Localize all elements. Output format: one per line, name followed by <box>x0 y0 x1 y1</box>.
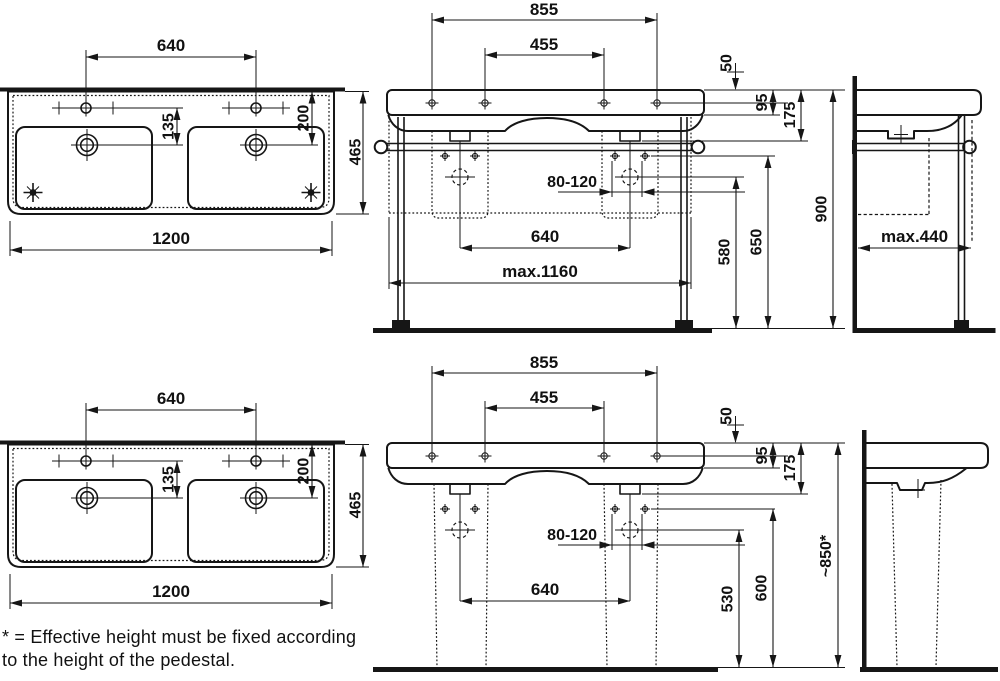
floor-line <box>373 328 712 333</box>
basin-underside-side <box>857 116 962 139</box>
frame-legs <box>392 117 693 328</box>
plan-view-top <box>0 36 369 256</box>
dim-rim-height: ~850* <box>818 443 838 667</box>
towel-rail-side <box>852 140 976 154</box>
dim-label-600: 600 <box>754 575 771 602</box>
dim-label-max440: max.440 <box>881 227 948 246</box>
floor-line <box>860 667 998 672</box>
dim-drain-height: 530 <box>720 530 739 667</box>
dim-label-580: 580 <box>717 239 734 266</box>
wall-line <box>862 430 867 672</box>
dim-label-max1160: max.1160 <box>502 262 578 281</box>
washbasin-technical-drawing: 640 135 200 465 1200 <box>0 0 1000 681</box>
footnote-line-2: to the height of the pedestal. <box>2 650 235 670</box>
footnote: * = Effective height must be fixed accor… <box>2 627 356 670</box>
mounting-cross-right <box>302 183 321 202</box>
dim-fixing-height: 600 <box>754 509 773 667</box>
trap-cross-mark <box>894 125 908 144</box>
footnote-line-1: * = Effective height must be fixed accor… <box>2 627 356 647</box>
dim-label-650: 650 <box>749 229 766 256</box>
side-view-with-legs: max.440 <box>852 76 996 333</box>
mounting-cross-left <box>24 183 43 202</box>
dim-fixing-height: 650 <box>749 156 768 328</box>
dim-label-900: 900 <box>814 196 831 223</box>
side-view-with-pedestal <box>860 430 998 672</box>
dim-rim-height: 900 <box>814 90 833 328</box>
dim-drain-height: 580 <box>717 177 736 328</box>
towel-rail <box>375 141 705 154</box>
plan-view-bottom <box>0 389 369 609</box>
floor-line <box>853 328 996 333</box>
dim-label-850: ~850* <box>818 534 835 577</box>
basin-slab-side <box>857 90 981 115</box>
pedestal-side-dotted <box>892 480 941 667</box>
basin-underside-side <box>866 469 966 491</box>
frame-leg-side <box>954 115 969 328</box>
pedestal-right-dotted <box>604 484 658 667</box>
basin-slab-side <box>866 443 988 468</box>
front-view-with-legs: max.1160 580 650 900 <box>373 0 845 333</box>
technical-drawing-page: 640 135 200 465 1200 <box>0 0 1000 681</box>
dim-label-530: 530 <box>720 586 737 613</box>
floor-line <box>373 667 718 672</box>
dim-depth-max: max.440 <box>858 227 971 248</box>
pedestal-left-dotted <box>434 484 488 667</box>
front-view-with-pedestal: 530 600 ~850* <box>373 353 845 672</box>
